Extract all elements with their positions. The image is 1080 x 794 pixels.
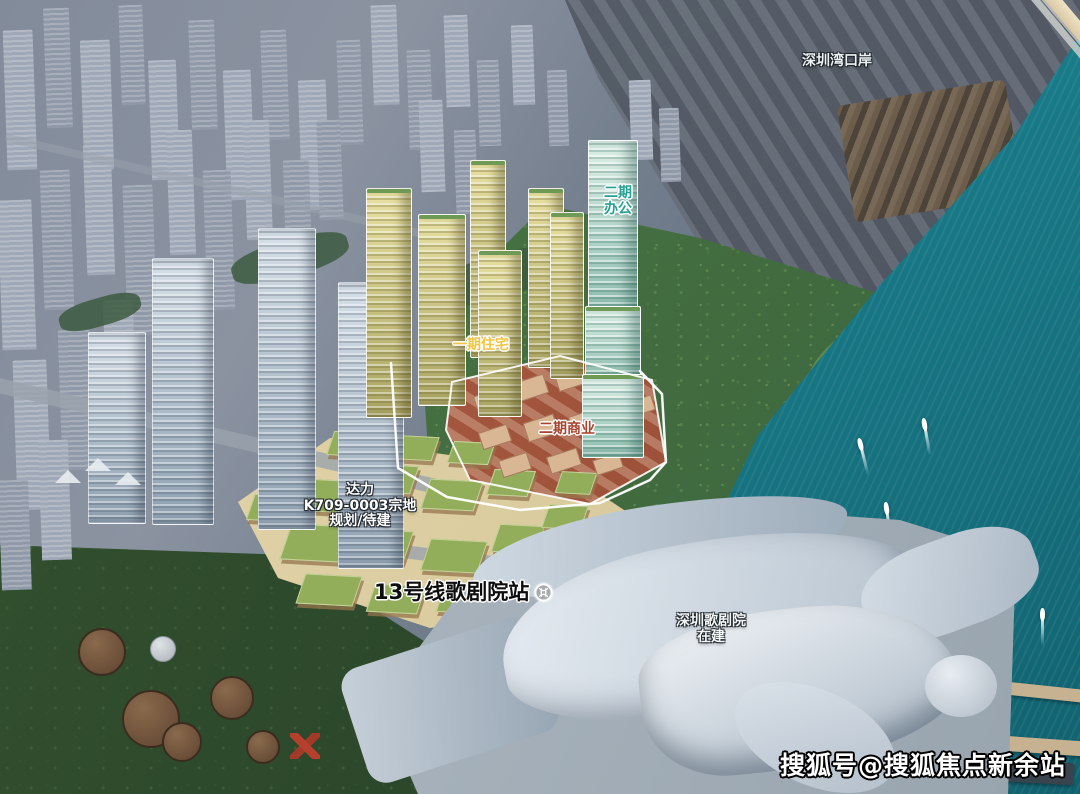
- decor-city-building: [547, 70, 570, 147]
- decor-residential-tower: [366, 188, 412, 418]
- decor-residential-tower: [418, 214, 466, 406]
- metro-station-text: 13号线歌剧院站: [374, 581, 529, 605]
- decor-gray-tower: [88, 332, 146, 524]
- decor-park-dome: [150, 636, 176, 662]
- decor-city-building: [3, 30, 38, 171]
- decor-city-building: [40, 170, 75, 311]
- decor-park-tank: [162, 722, 202, 762]
- decor-green-roof: [295, 574, 362, 607]
- decor-city-building: [38, 440, 72, 561]
- plot-info-label: 达力 K709-0003宗地 规划/待建: [304, 483, 417, 530]
- decor-green-roof: [420, 479, 483, 512]
- decor-roof-garden: [419, 215, 465, 219]
- aerial-render: 深圳湾口岸 二期 办公 一期住宅 二期商业 达力 K709-0003宗地 规划/…: [0, 0, 1080, 794]
- decor-green-roof: [555, 471, 598, 495]
- port-label: 深圳湾口岸: [802, 54, 872, 70]
- decor-city-building: [443, 15, 470, 108]
- decor-roof-garden: [367, 189, 411, 193]
- decor-roof-garden: [529, 189, 563, 193]
- decor-city-building: [511, 25, 536, 106]
- shenzhen-metro-icon: [534, 583, 553, 602]
- decor-city-building: [188, 20, 218, 131]
- decor-office-tower-segment: [582, 374, 644, 458]
- decor-city-building: [477, 60, 502, 147]
- decor-city-building: [659, 108, 682, 183]
- decor-boat: [1040, 608, 1045, 621]
- decor-city-building: [370, 5, 399, 106]
- metro-station-label: 13号线歌剧院站: [374, 581, 553, 605]
- decor-park-tank: [246, 730, 280, 764]
- decor-residential-tower: [550, 212, 584, 379]
- phase2-office-label: 二期 办公: [604, 186, 632, 217]
- opera-house-label: 深圳歌剧院 在建: [676, 614, 746, 645]
- plot-line1: 达力: [304, 483, 417, 499]
- decor-residential-tower: [478, 250, 522, 417]
- plot-line3: 规划/待建: [304, 514, 417, 530]
- decor-red-sculpture: [290, 733, 320, 759]
- decor-park-tank: [210, 676, 254, 720]
- decor-roof-garden: [479, 251, 521, 255]
- decor-sky-terrace: [583, 375, 643, 379]
- decor-city-building: [0, 480, 32, 591]
- decor-opera-roof: [925, 655, 997, 717]
- phase1-residential-label: 一期住宅: [453, 338, 509, 354]
- decor-city-building: [243, 120, 273, 241]
- decor-boat-wake: [1041, 620, 1044, 646]
- opera-line1: 深圳歌剧院: [676, 614, 746, 630]
- opera-line2: 在建: [676, 630, 746, 646]
- decor-office-tower-segment: [585, 306, 641, 380]
- phase2-commercial-label: 二期商业: [539, 422, 595, 438]
- decor-city-building: [0, 199, 37, 350]
- decor-park-tank: [78, 628, 126, 676]
- decor-roof-garden: [551, 213, 583, 217]
- decor-gray-tower: [152, 258, 214, 525]
- phase2-office-line2: 办公: [604, 202, 632, 218]
- plot-line2: K709-0003宗地: [304, 499, 417, 515]
- decor-city-building: [118, 5, 145, 106]
- decor-city-building: [166, 130, 196, 256]
- phase2-office-line1: 二期: [604, 186, 632, 202]
- decor-office-tower-segment: [588, 140, 638, 312]
- decor-roof-garden: [471, 161, 505, 165]
- decor-sky-terrace: [586, 307, 640, 311]
- decor-city-building: [418, 100, 445, 193]
- watermark: 搜狐号@搜狐焦点新余站: [780, 752, 1066, 780]
- decor-city-building: [43, 8, 73, 129]
